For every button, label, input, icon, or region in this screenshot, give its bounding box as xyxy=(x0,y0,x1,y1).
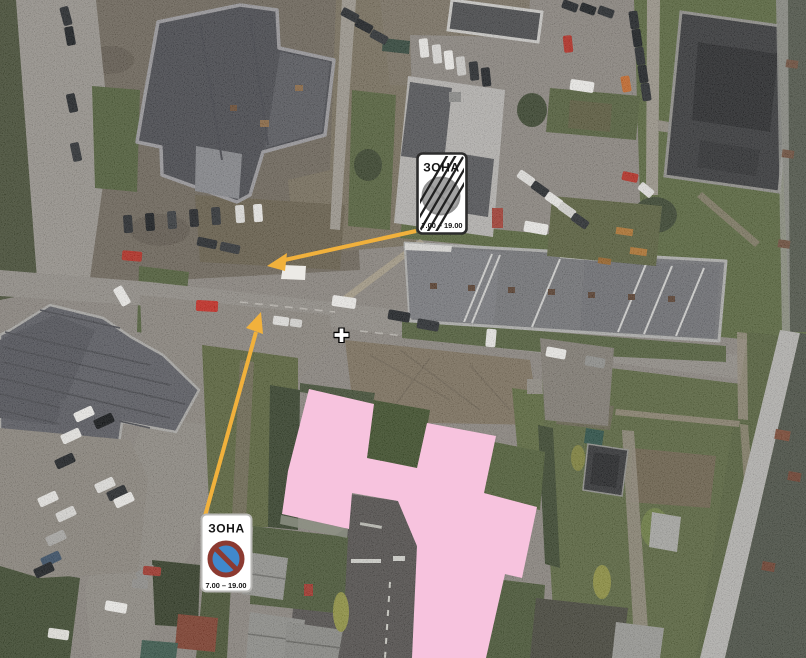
svg-text:7.00 – 19.00: 7.00 – 19.00 xyxy=(421,221,462,230)
svg-text:ЗОНА: ЗОНА xyxy=(423,161,459,175)
svg-text:ЗОНА: ЗОНА xyxy=(208,522,244,536)
svg-text:7.00 – 19.00: 7.00 – 19.00 xyxy=(205,581,246,590)
